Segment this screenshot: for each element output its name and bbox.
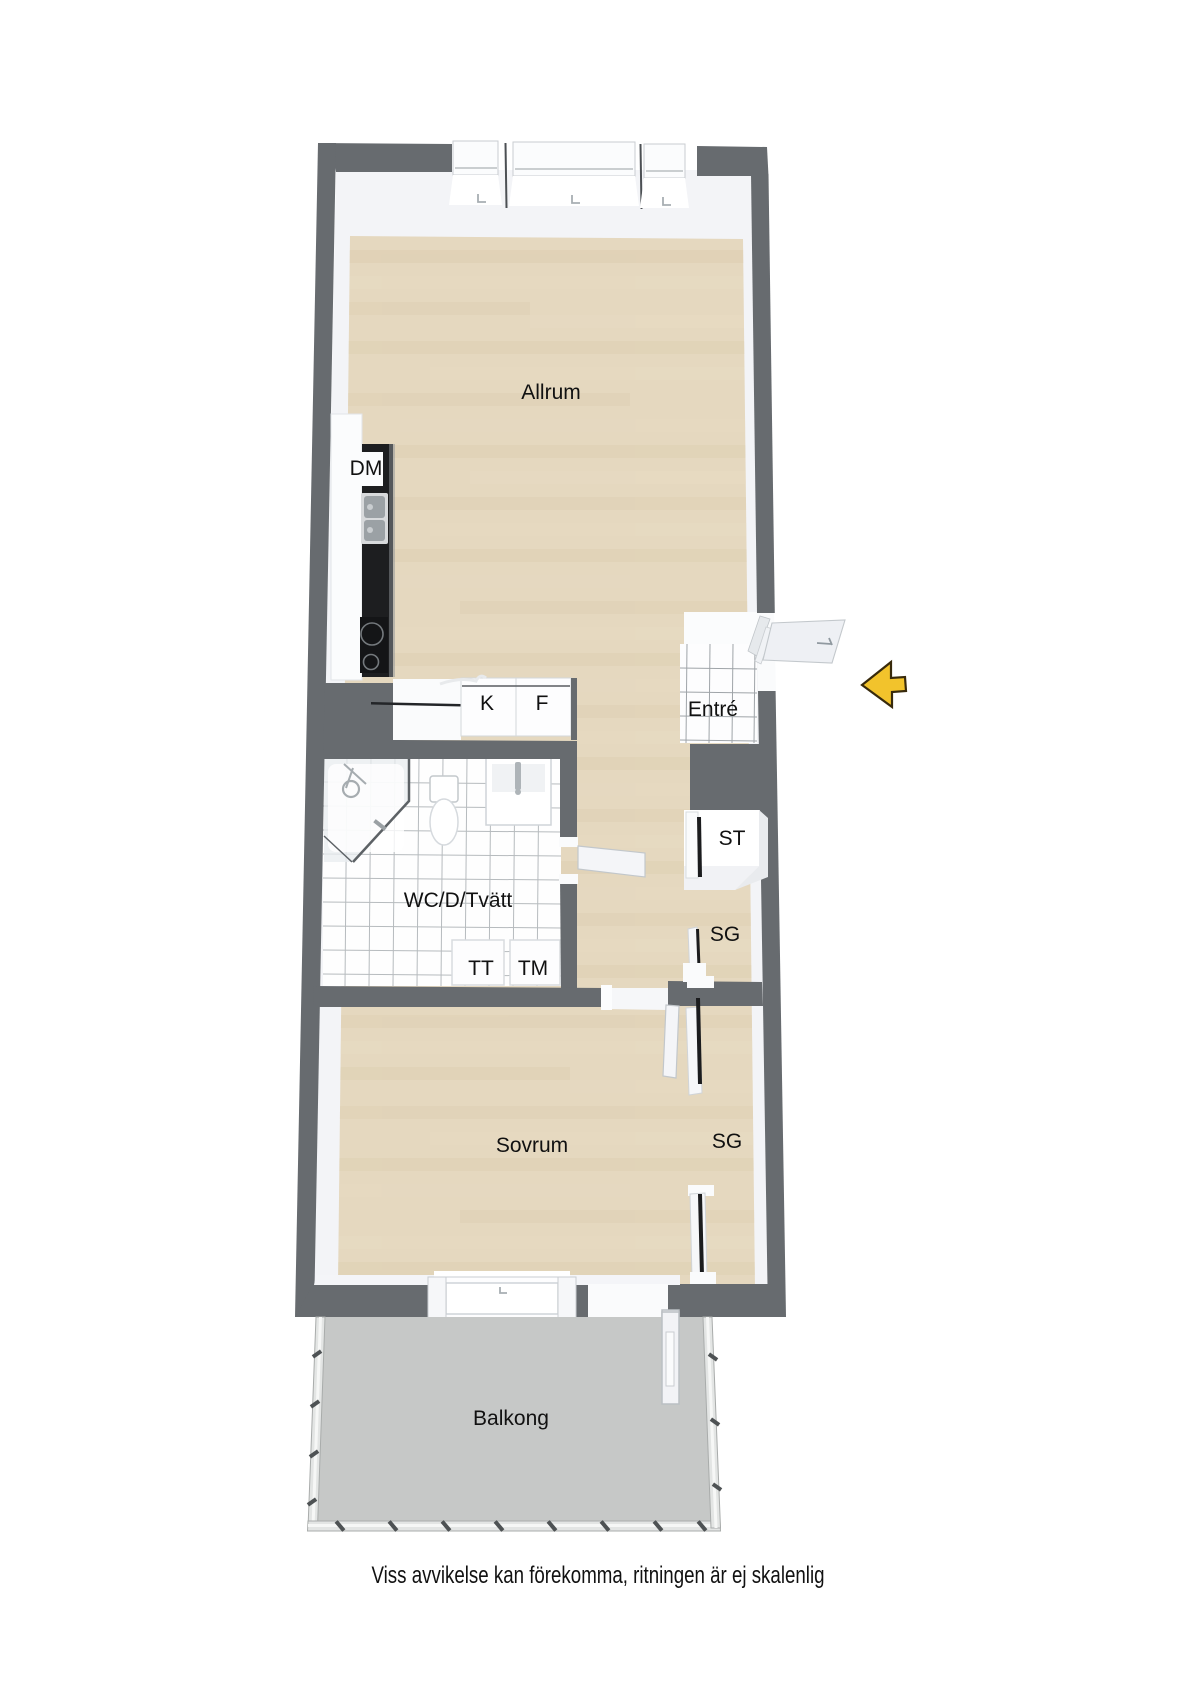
svg-text:Allrum: Allrum [521, 381, 581, 404]
svg-text:TM: TM [518, 957, 548, 980]
svg-text:F: F [536, 692, 549, 715]
svg-text:WC/D/Tvätt: WC/D/Tvätt [404, 889, 513, 912]
svg-text:ST: ST [719, 827, 746, 850]
svg-text:DM: DM [350, 457, 383, 480]
svg-text:K: K [480, 692, 494, 715]
svg-text:SG: SG [712, 1130, 742, 1153]
svg-text:TT: TT [468, 957, 494, 980]
svg-text:SG: SG [710, 923, 740, 946]
svg-text:Sovrum: Sovrum [496, 1134, 568, 1157]
svg-text:Entré: Entré [688, 698, 738, 721]
svg-text:Viss avvikelse kan förekomma,: Viss avvikelse kan förekomma, ritningen … [372, 1562, 825, 1589]
svg-text:Balkong: Balkong [473, 1407, 549, 1430]
